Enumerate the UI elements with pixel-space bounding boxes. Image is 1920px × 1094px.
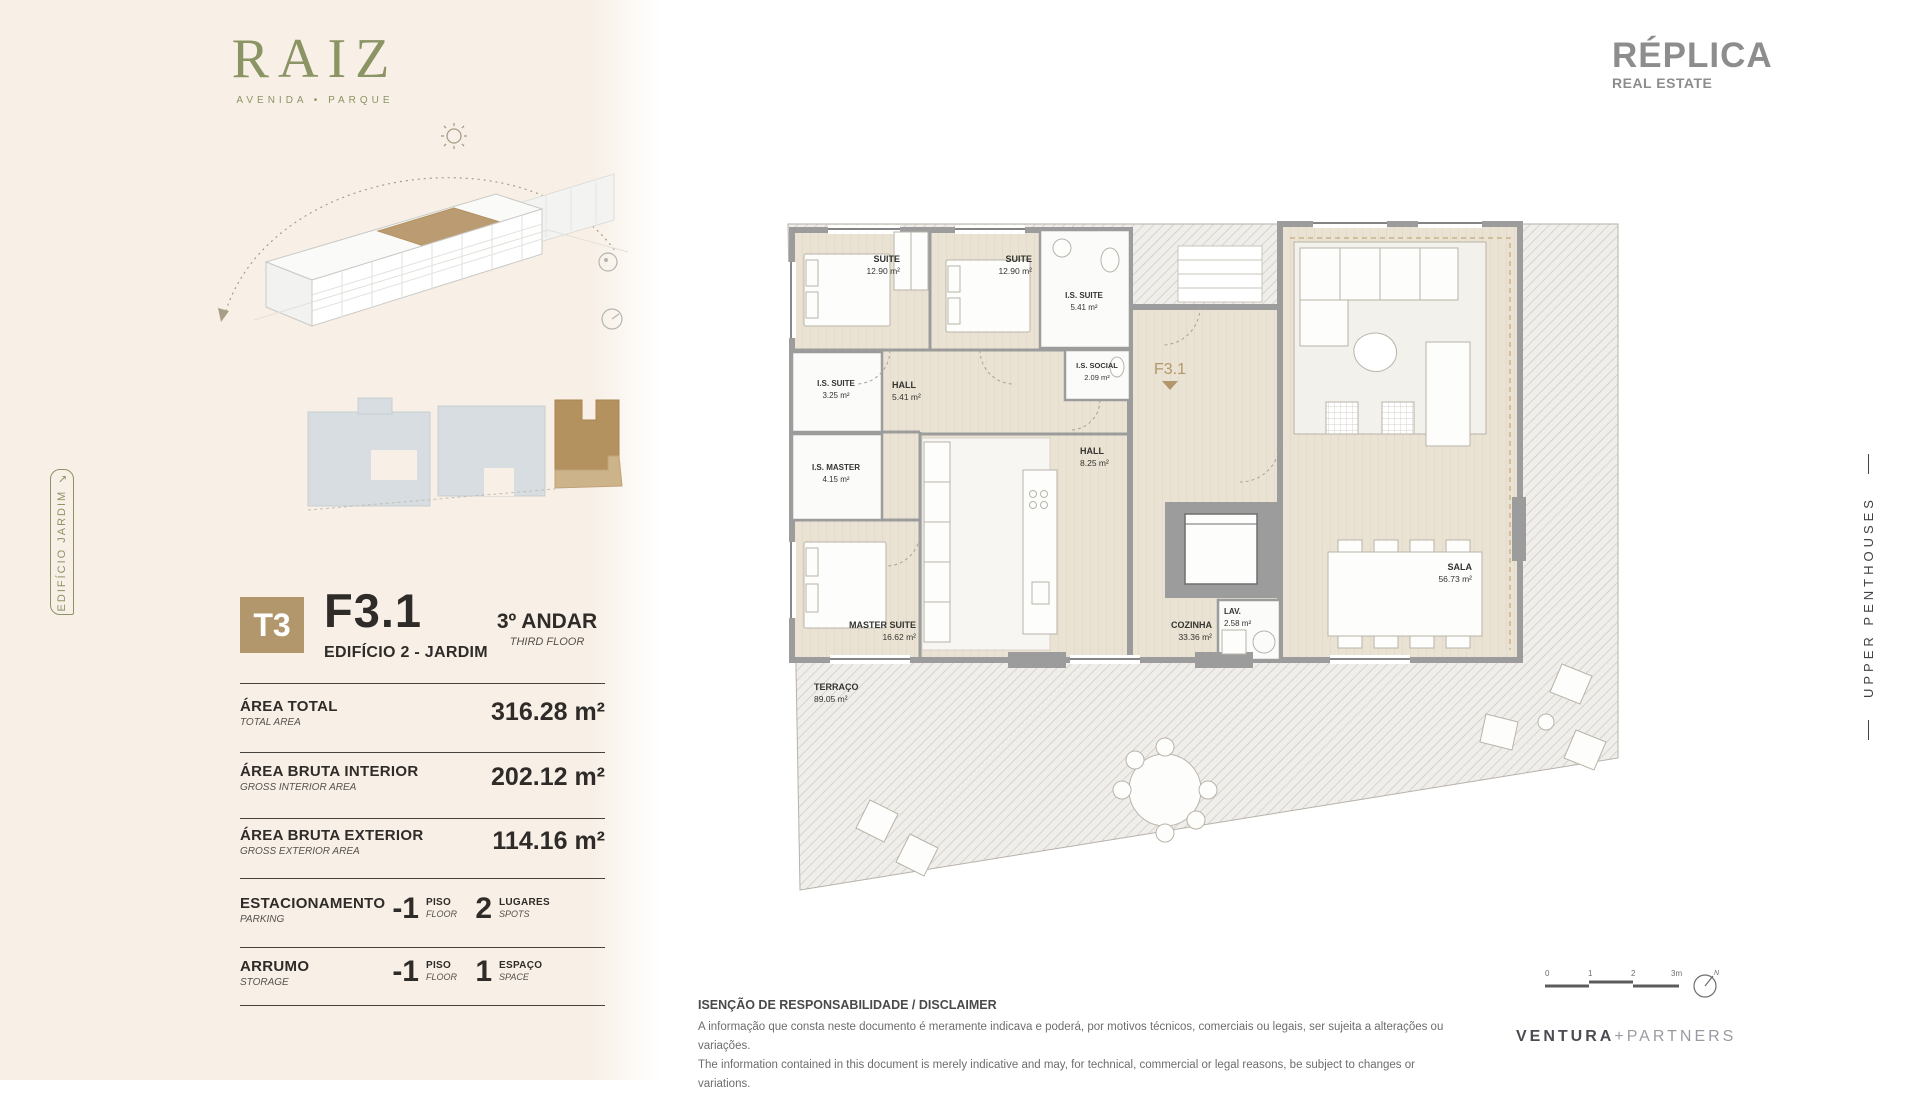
unit-en: SPOTS bbox=[499, 909, 550, 919]
north-compass-icon: N bbox=[1694, 970, 1720, 997]
room-area: 12.90 m² bbox=[866, 266, 900, 276]
floor-plan: SUITE 12.90 m² SUITE 12.90 m² I.S. SUITE… bbox=[770, 202, 1635, 902]
label-rule bbox=[1868, 720, 1869, 740]
unit-en: FLOOR bbox=[426, 909, 457, 919]
scale-segments bbox=[1545, 982, 1679, 986]
disclaimer-title: ISENÇÃO DE RESPONSABILIDADE / DISCLAIMER bbox=[698, 998, 1458, 1012]
divider bbox=[240, 752, 605, 753]
area-row-total: ÁREA TOTAL TOTAL AREA 316.28 m² bbox=[240, 698, 605, 728]
floor-label-en: THIRD FLOOR bbox=[482, 636, 612, 648]
divider bbox=[240, 1005, 605, 1006]
area-value: 316.28 m² bbox=[491, 698, 605, 727]
room-label: TERRAÇO bbox=[814, 682, 859, 692]
room-label: SUITE bbox=[873, 254, 900, 264]
unit-en: SPACE bbox=[499, 972, 542, 982]
parking-spots-unit: LUGARES SPOTS bbox=[499, 897, 550, 919]
core-block bbox=[1165, 502, 1277, 598]
key-plan-notch bbox=[484, 468, 514, 496]
disclaimer-line-en: The information contained in this docume… bbox=[698, 1056, 1458, 1094]
room-area: 8.25 m² bbox=[1080, 458, 1109, 468]
ventura-partners-logo: VENTURA+PARTNERS bbox=[1516, 1028, 1736, 1046]
room-area: 33.36 m² bbox=[1178, 632, 1212, 642]
replica-logo: RÉPLICA REAL ESTATE bbox=[1612, 38, 1773, 91]
parking-spots-value: 2 bbox=[460, 892, 492, 926]
raiz-logo: RAIZ AVENIDA • PARQUE bbox=[230, 30, 400, 106]
room-label: I.S. SUITE bbox=[817, 379, 855, 388]
storage-floor-value: -1 bbox=[385, 955, 419, 989]
parking-label: ESTACIONAMENTO bbox=[240, 895, 605, 912]
upper-penthouses-text: UPPER PENTHOUSES bbox=[1861, 496, 1876, 698]
scale-tick: 3m bbox=[1671, 969, 1682, 978]
room-area: 16.62 m² bbox=[882, 632, 916, 642]
arrow-up-right-icon: ↘ bbox=[56, 473, 69, 484]
room-area: 2.09 m² bbox=[1084, 373, 1110, 382]
room-label: SALA bbox=[1448, 562, 1473, 572]
building-illustration bbox=[196, 112, 636, 367]
upper-penthouses-label: UPPER PENTHOUSES bbox=[1859, 454, 1877, 740]
disclaimer: ISENÇÃO DE RESPONSABILIDADE / DISCLAIMER… bbox=[698, 998, 1458, 1094]
storage-space-value: 1 bbox=[460, 955, 492, 989]
entry-steps bbox=[1178, 246, 1262, 302]
divider bbox=[240, 878, 605, 879]
parking-row: ESTACIONAMENTO PARKING bbox=[240, 895, 605, 925]
storage-label-en: STORAGE bbox=[240, 977, 605, 988]
room-area: 89.05 m² bbox=[814, 694, 848, 704]
raiz-logo-wordmark: RAIZ bbox=[230, 30, 400, 89]
parking-floor-value: -1 bbox=[385, 892, 419, 926]
unit-pt: PISO bbox=[426, 960, 457, 971]
replica-wordmark: RÉPLICA bbox=[1612, 38, 1773, 73]
unit-marker-text: F3.1 bbox=[1154, 361, 1186, 378]
unit-building: EDIFÍCIO 2 - JARDIM bbox=[324, 644, 488, 662]
edificio-jardim-tab: EDIFÍCIO JARDIM ↘ bbox=[50, 469, 74, 615]
unit-floor: 3º ANDAR THIRD FLOOR bbox=[482, 610, 612, 648]
key-plan-courtyard bbox=[371, 450, 417, 480]
unit-type-badge: T3 bbox=[240, 597, 304, 653]
storage-label: ARRUMO bbox=[240, 958, 605, 975]
ventura-word: VENTURA bbox=[1516, 1028, 1614, 1045]
sun-icon bbox=[441, 123, 467, 149]
unit-pt: ESPAÇO bbox=[499, 960, 542, 971]
room-label: HALL bbox=[1080, 446, 1104, 456]
scale-bar: 0 1 2 3m N bbox=[1543, 966, 1723, 1006]
scale-tick: 0 bbox=[1545, 969, 1550, 978]
raiz-logo-tagline: AVENIDA • PARQUE bbox=[230, 95, 400, 106]
unit-en: FLOOR bbox=[426, 972, 457, 982]
arc-arrow-icon bbox=[218, 308, 229, 322]
area-value: 114.16 m² bbox=[492, 827, 605, 856]
room-area: 5.41 m² bbox=[1070, 303, 1097, 312]
area-row-exterior: ÁREA BRUTA EXTERIOR GROSS EXTERIOR AREA … bbox=[240, 827, 605, 857]
room-area: 2.58 m² bbox=[1224, 619, 1251, 628]
room-area: 12.90 m² bbox=[998, 266, 1032, 276]
edificio-jardim-label: EDIFÍCIO JARDIM bbox=[56, 490, 68, 612]
key-plan bbox=[278, 388, 628, 528]
north-letter: N bbox=[1714, 970, 1720, 977]
room-area: 4.15 m² bbox=[822, 475, 849, 484]
partners-word: PARTNERS bbox=[1627, 1028, 1737, 1045]
unit-pt: PISO bbox=[426, 897, 457, 908]
parking-label-en: PARKING bbox=[240, 914, 605, 925]
room-label: I.S. SUITE bbox=[1065, 291, 1103, 300]
replica-subtitle: REAL ESTATE bbox=[1612, 75, 1773, 91]
storage-floor-unit: PISO FLOOR bbox=[426, 960, 457, 982]
area-row-interior: ÁREA BRUTA INTERIOR GROSS INTERIOR AREA … bbox=[240, 763, 605, 793]
room-label: I.S. MASTER bbox=[812, 463, 860, 472]
room-label: SUITE bbox=[1005, 254, 1032, 264]
room-label: HALL bbox=[892, 380, 916, 390]
divider bbox=[240, 818, 605, 819]
room-label: I.S. SOCIAL bbox=[1076, 361, 1118, 370]
room-label: LAV. bbox=[1224, 607, 1241, 616]
area-value: 202.12 m² bbox=[491, 763, 605, 792]
label-rule bbox=[1868, 454, 1869, 474]
plus-sign: + bbox=[1614, 1028, 1626, 1045]
storage-row: ARRUMO STORAGE bbox=[240, 958, 605, 988]
room-label: COZINHA bbox=[1171, 620, 1212, 630]
dial-icon bbox=[599, 253, 622, 329]
disclaimer-line-pt: A informação que consta neste documento … bbox=[698, 1018, 1458, 1056]
scale-tick: 2 bbox=[1631, 969, 1636, 978]
divider bbox=[240, 947, 605, 948]
divider bbox=[240, 683, 605, 684]
room-area: 56.73 m² bbox=[1438, 574, 1472, 584]
room-area: 5.41 m² bbox=[892, 392, 921, 402]
room-area: 3.25 m² bbox=[822, 391, 849, 400]
storage-space-unit: ESPAÇO SPACE bbox=[499, 960, 542, 982]
parking-floor-unit: PISO FLOOR bbox=[426, 897, 457, 919]
room-label: MASTER SUITE bbox=[849, 620, 916, 630]
unit-code: F3.1 bbox=[324, 583, 422, 638]
floor-label-pt: 3º ANDAR bbox=[482, 610, 612, 634]
scale-tick: 1 bbox=[1588, 969, 1593, 978]
unit-pt: LUGARES bbox=[499, 897, 550, 908]
